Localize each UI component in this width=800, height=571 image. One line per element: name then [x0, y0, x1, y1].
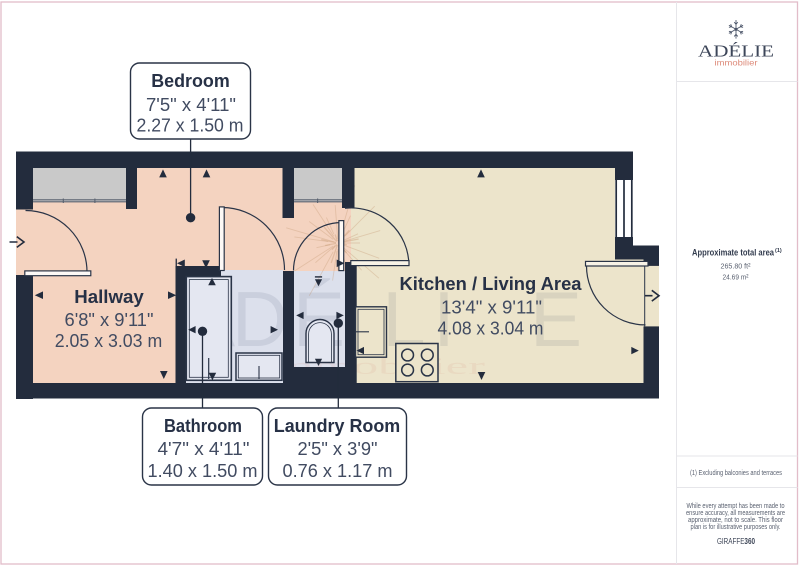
svg-text:Hallway: Hallway — [74, 286, 144, 307]
svg-text:Bathroom: Bathroom — [164, 415, 242, 436]
svg-text:GIRAFFE360: GIRAFFE360 — [717, 537, 755, 546]
svg-text:2'5" x 3'9": 2'5" x 3'9" — [298, 438, 378, 459]
svg-text:4'7" x 4'11": 4'7" x 4'11" — [158, 438, 250, 459]
svg-text:Approximate total area: Approximate total area — [692, 248, 775, 258]
svg-text:2.05 x 3.03 m: 2.05 x 3.03 m — [55, 330, 163, 351]
svg-text:ensure accuracy, all measureme: ensure accuracy, all measurements are — [686, 510, 785, 517]
svg-text:7'5" x 4'11": 7'5" x 4'11" — [146, 94, 236, 115]
svg-text:(1): (1) — [775, 248, 782, 254]
svg-text:265.80 ft²: 265.80 ft² — [721, 261, 751, 270]
svg-text:Bedroom: Bedroom — [151, 70, 230, 91]
svg-text:6'8" x 9'11": 6'8" x 9'11" — [65, 309, 154, 330]
svg-text:13'4" x 9'11": 13'4" x 9'11" — [441, 297, 542, 318]
svg-text:(1) Excluding balconies and te: (1) Excluding balconies and terraces — [690, 470, 782, 477]
svg-text:4.08 x 3.04 m: 4.08 x 3.04 m — [438, 318, 544, 339]
svg-text:D: D — [232, 275, 288, 363]
svg-text:1.40 x 1.50 m: 1.40 x 1.50 m — [148, 460, 258, 481]
svg-text:plan is for illustrative purpo: plan is for illustrative purposes only. — [691, 524, 781, 531]
svg-text:24.69 m²: 24.69 m² — [723, 272, 749, 281]
svg-text:approximate, not to scale. Thi: approximate, not to scale. This floor — [688, 517, 784, 524]
svg-text:Kitchen / Living Area: Kitchen / Living Area — [400, 273, 583, 294]
svg-text:While every attempt has been m: While every attempt has been made to — [687, 503, 785, 510]
svg-text:2.27 x 1.50 m: 2.27 x 1.50 m — [137, 115, 244, 136]
svg-text:immobilier: immobilier — [715, 59, 758, 68]
svg-text:0.76 x 1.17 m: 0.76 x 1.17 m — [283, 460, 393, 481]
svg-text:Laundry Room: Laundry Room — [274, 415, 401, 436]
